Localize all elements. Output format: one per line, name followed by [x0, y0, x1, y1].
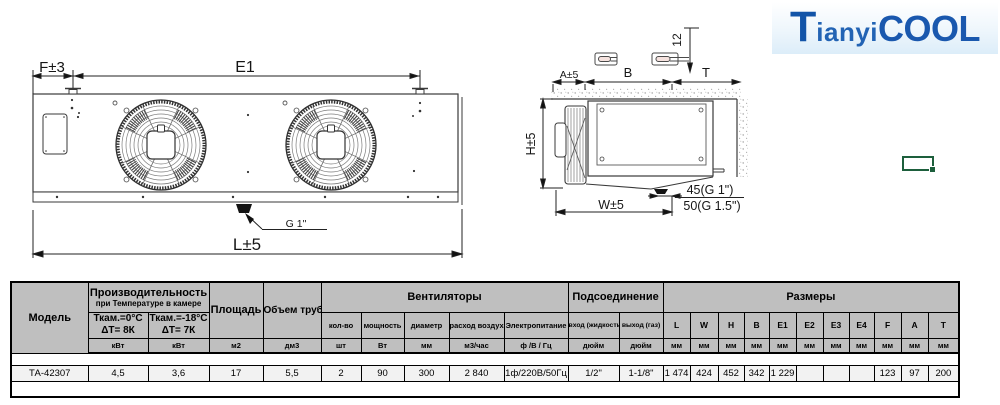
ceiling-bracket-2 [652, 53, 689, 65]
fan-grille-right [286, 100, 376, 190]
col-header-fan-diameter: диаметр [404, 312, 449, 338]
drain-dim-bottom-label: 50(G 1.5") [683, 199, 740, 213]
cell-dim-l: 1 474 [663, 365, 690, 381]
selected-cell-indicator[interactable] [902, 156, 934, 171]
cell-dim-a: 97 [901, 365, 928, 381]
col-header-dim-e2: E2 [796, 312, 823, 338]
col-header-area: Площадь [209, 282, 263, 338]
col-group-dimensions: Размеры [663, 282, 959, 312]
drain-dim-top-label: 45(G 1") [687, 183, 734, 197]
col-header-fan-qty: кол-во [321, 312, 361, 338]
col-header-inlet: вход (жидкость) [568, 312, 619, 338]
side-pipe [713, 169, 724, 172]
bottom-flange [33, 192, 458, 202]
dim-h-label: H±5 [524, 133, 538, 156]
cell-fan-airflow: 2 840 [449, 365, 504, 381]
cell-dim-e3 [823, 365, 849, 381]
col-header-outlet: выход (газ) [619, 312, 663, 338]
drain-stub [236, 204, 252, 213]
col-header-dim-e4: E4 [849, 312, 874, 338]
col-group-fans: Вентиляторы [321, 282, 568, 312]
col-header-dim-e1: E1 [769, 312, 796, 338]
dim-l-label: L±5 [233, 235, 261, 254]
side-view-drawing: 12 A±5 B T [524, 28, 748, 216]
spacer-row [11, 353, 959, 365]
capacity-group-note: при Температуре в камере [89, 299, 209, 308]
dim-e1-label: E1 [235, 59, 255, 76]
side-fan-block [555, 106, 586, 184]
cell-dim-e4 [849, 365, 874, 381]
dim-f-label: F±3 [39, 59, 65, 76]
cell-outlet: 1-1/8" [619, 365, 663, 381]
cell-dim-w: 424 [690, 365, 718, 381]
cell-capacity-0c: 4,5 [88, 365, 148, 381]
drain-label: G 1" [286, 218, 307, 230]
col-header-dim-e3: E3 [823, 312, 849, 338]
cell-fan-qty: 2 [321, 365, 361, 381]
col-header-dim-h: H [718, 312, 744, 338]
units-row: кВткВтм2 дм3штВт ммм3/часф /В / Гц дюймд… [11, 338, 959, 353]
wall-hatch [737, 99, 748, 177]
side-drain-stub [654, 189, 668, 194]
dim-w-label: W±5 [598, 198, 624, 212]
col-header-power-supply: Электропитание [504, 312, 568, 338]
cell-capacity-18c: 3,6 [148, 365, 209, 381]
logo-ianyi: ianyi [816, 17, 878, 48]
cell-dim-h: 452 [718, 365, 744, 381]
dim-b-label: B [624, 65, 633, 80]
fan-grille-left [116, 100, 206, 190]
spacer-row-bottom [11, 381, 959, 397]
col-header-dim-b: B [744, 312, 769, 338]
col-header-dim-l: L [663, 312, 690, 338]
col-header-dim-f: F [874, 312, 901, 338]
offset-12-label: 12 [670, 33, 684, 47]
cell-power-supply: 1ф/220В/50Гц [504, 365, 568, 381]
col-header-fan-power: мощность [361, 312, 404, 338]
logo-cool: COOL [878, 8, 980, 50]
hanging-bracket-left [65, 89, 81, 95]
cell-fan-diameter: 300 [404, 365, 449, 381]
ceiling-hatch [551, 87, 741, 99]
col-header-dim-w: W [690, 312, 718, 338]
col-header-capacity-18c: Ткам.=-18°СΔТ= 7К [148, 312, 209, 338]
cell-dim-e1: 1 229 [769, 365, 796, 381]
cell-dim-t: 200 [928, 365, 959, 381]
data-row: ТА-42307 4,5 3,6 17 5,5 2 90 300 2 840 1… [11, 365, 959, 381]
col-header-fan-airflow: расход воздуха [449, 312, 504, 338]
cell-fan-power: 90 [361, 365, 404, 381]
col-header-capacity-0c: Ткам.=0°СΔТ= 8К [88, 312, 148, 338]
col-group-capacity: Производительность при Температуре в кам… [88, 282, 209, 312]
cell-dim-b: 342 [744, 365, 769, 381]
hanging-bracket-right [412, 89, 428, 95]
fill-handle[interactable] [929, 166, 936, 173]
col-group-connection: Подсоединение [568, 282, 663, 312]
col-header-dim-t: T [928, 312, 959, 338]
col-header-model: Модель [11, 282, 88, 353]
col-header-dim-a: A [901, 312, 928, 338]
logo-letter-t: T [790, 2, 816, 52]
cell-dim-f: 123 [874, 365, 901, 381]
spec-table: Модель Производительность при Температур… [10, 281, 960, 398]
cell-inlet: 1/2" [568, 365, 619, 381]
ceiling-bracket-1 [595, 53, 617, 65]
dimension-offset-12 [684, 28, 699, 72]
col-header-tube-volume: Объем труб [263, 282, 321, 338]
cell-tube-volume: 5,5 [263, 365, 321, 381]
cell-dim-e2 [796, 365, 823, 381]
dim-t-label: T [702, 65, 710, 80]
front-view-drawing: F±3 E1 G 1" L±5 [33, 59, 462, 258]
cell-area: 17 [209, 365, 263, 381]
unit-body [33, 94, 458, 192]
cell-model: ТА-42307 [11, 365, 88, 381]
capacity-group-title: Производительность [89, 287, 209, 299]
brand-logo: TianyiCOOL [772, 2, 998, 54]
dim-a-label: A±5 [560, 69, 579, 81]
